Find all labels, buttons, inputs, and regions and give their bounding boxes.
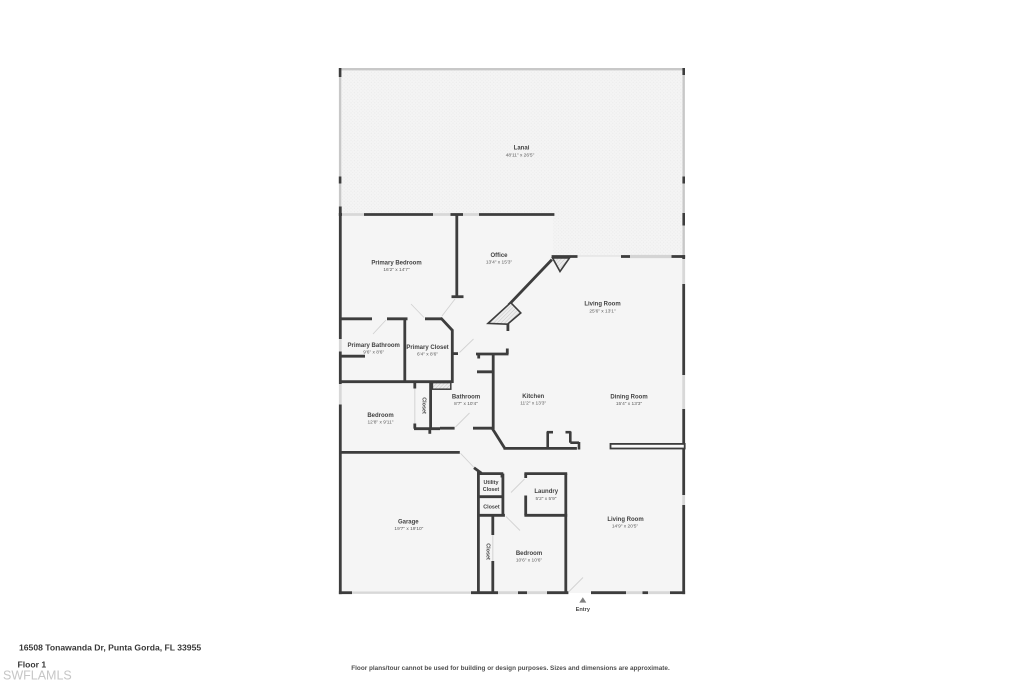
svg-text:Kitchen: Kitchen	[522, 394, 544, 400]
svg-text:Garage: Garage	[398, 520, 419, 526]
svg-text:Living Room: Living Room	[584, 302, 620, 308]
svg-text:19'7" x 19'10": 19'7" x 19'10"	[394, 526, 423, 532]
svg-text:6'4" x 8'6": 6'4" x 8'6"	[417, 352, 438, 358]
svg-text:9'6" x 8'6": 9'6" x 8'6"	[363, 350, 384, 356]
svg-text:13'4" x 15'3": 13'4" x 15'3"	[486, 260, 513, 266]
svg-text:11'2" x 13'3": 11'2" x 13'3"	[520, 401, 546, 407]
svg-text:25'6" x 13'1": 25'6" x 13'1"	[589, 309, 616, 315]
svg-text:48'11" x 26'5": 48'11" x 26'5"	[506, 153, 535, 159]
svg-text:Closet: Closet	[421, 397, 427, 414]
svg-text:Living Room: Living Room	[607, 517, 643, 523]
svg-text:SWFLAMLS: SWFLAMLS	[3, 669, 72, 681]
svg-text:Utility: Utility	[484, 480, 499, 486]
svg-text:Office: Office	[490, 253, 508, 259]
svg-text:Laundry: Laundry	[534, 489, 558, 495]
svg-text:14'9" x 20'5": 14'9" x 20'5"	[612, 524, 639, 530]
svg-text:Dining Room: Dining Room	[610, 395, 647, 401]
svg-text:5'2" x 5'9": 5'2" x 5'9"	[536, 496, 557, 502]
svg-text:Primary Bedroom: Primary Bedroom	[371, 261, 421, 267]
svg-text:Bathroom: Bathroom	[452, 395, 480, 401]
svg-text:Bedroom: Bedroom	[367, 413, 393, 419]
svg-text:Entry: Entry	[576, 607, 591, 613]
svg-text:Closet: Closet	[483, 505, 500, 511]
svg-text:15'4" x 13'3": 15'4" x 13'3"	[616, 401, 643, 407]
svg-text:Bedroom: Bedroom	[516, 551, 542, 557]
svg-text:10'6" x 10'6": 10'6" x 10'6"	[516, 558, 543, 564]
svg-text:Primary Bathroom: Primary Bathroom	[348, 343, 400, 349]
svg-text:16'2" x 14'7": 16'2" x 14'7"	[383, 267, 410, 273]
svg-text:Closet: Closet	[484, 543, 490, 560]
svg-text:Closet: Closet	[483, 487, 500, 493]
svg-text:16508 Tonawanda Dr, Punta Gord: 16508 Tonawanda Dr, Punta Gorda, FL 3395…	[19, 643, 201, 653]
svg-text:12'8" x 9'11": 12'8" x 9'11"	[368, 420, 394, 426]
svg-text:8'7" x 10'4": 8'7" x 10'4"	[454, 401, 478, 407]
svg-text:Primary Closet: Primary Closet	[406, 345, 448, 351]
svg-text:Floor plans/tour cannot be use: Floor plans/tour cannot be used for buil…	[351, 665, 670, 672]
svg-text:Lanai: Lanai	[514, 146, 530, 152]
